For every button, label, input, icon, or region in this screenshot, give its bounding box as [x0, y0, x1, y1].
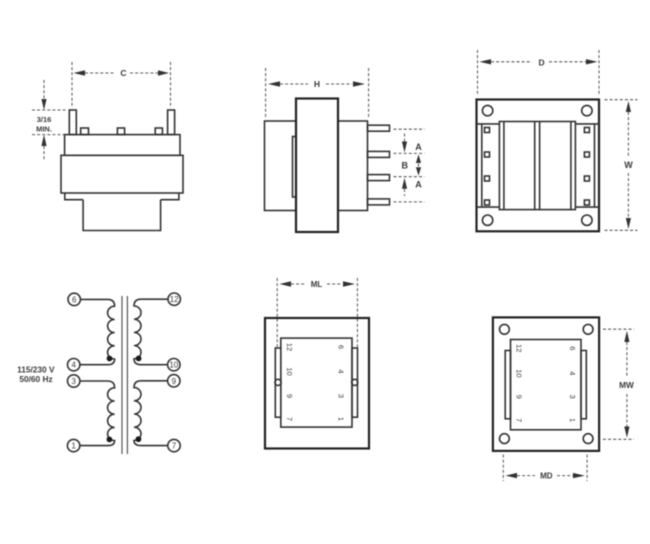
svg-text:10: 10	[515, 369, 524, 377]
svg-text:3/16: 3/16	[37, 115, 52, 124]
svg-text:MD: MD	[540, 472, 553, 481]
svg-text:115/230 V: 115/230 V	[17, 364, 55, 374]
svg-text:H: H	[314, 79, 320, 89]
svg-text:50/60 Hz: 50/60 Hz	[19, 374, 52, 384]
svg-text:12: 12	[285, 343, 294, 351]
svg-text:A: A	[415, 142, 422, 152]
svg-text:9: 9	[172, 377, 177, 386]
svg-text:3: 3	[71, 377, 76, 386]
svg-text:12: 12	[170, 295, 179, 304]
svg-text:7: 7	[172, 442, 177, 451]
svg-text:D: D	[539, 57, 545, 67]
svg-text:12: 12	[515, 344, 524, 352]
svg-text:10: 10	[169, 361, 178, 370]
svg-text:C: C	[120, 68, 126, 78]
svg-text:3: 3	[336, 394, 345, 398]
svg-text:9: 9	[285, 394, 294, 398]
svg-text:1: 1	[336, 417, 345, 421]
svg-text:7: 7	[515, 418, 524, 422]
svg-text:1: 1	[71, 442, 76, 451]
svg-text:10: 10	[285, 367, 294, 375]
svg-text:W: W	[624, 160, 633, 170]
svg-text:1: 1	[568, 418, 577, 422]
svg-text:3: 3	[568, 395, 577, 399]
svg-text:A: A	[415, 180, 422, 190]
svg-text:7: 7	[285, 417, 294, 421]
svg-text:4: 4	[336, 369, 345, 373]
svg-text:B: B	[401, 161, 408, 171]
svg-text:6: 6	[336, 345, 345, 349]
svg-text:4: 4	[568, 371, 577, 375]
svg-text:4: 4	[71, 361, 76, 370]
svg-text:ML: ML	[311, 280, 323, 289]
svg-text:6: 6	[72, 295, 77, 304]
svg-text:9: 9	[515, 395, 524, 399]
svg-text:MIN.: MIN.	[36, 125, 52, 134]
svg-text:6: 6	[568, 346, 577, 350]
svg-text:MW: MW	[619, 380, 634, 390]
